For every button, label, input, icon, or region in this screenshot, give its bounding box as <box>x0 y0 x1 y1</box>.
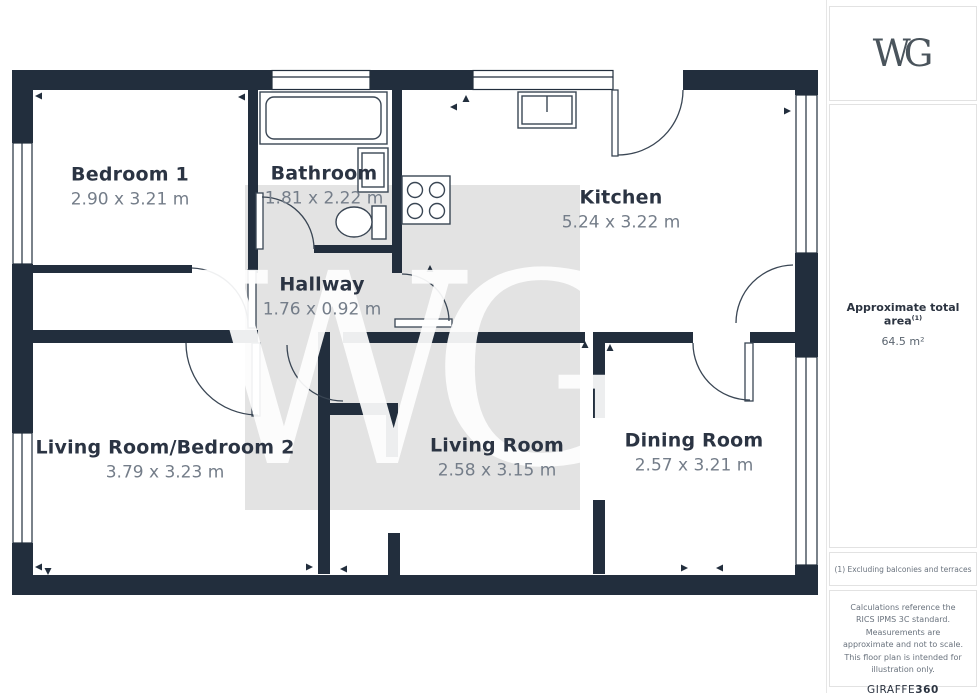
room-label-hallway: Hallway 1.76 x 0.92 m <box>263 272 382 323</box>
room-dimensions: 5.24 x 3.22 m <box>562 211 681 236</box>
total-area-superscript: (1) <box>912 314 922 322</box>
room-dimensions: 2.57 x 3.21 m <box>625 454 764 479</box>
room-label-kitchen: Kitchen 5.24 x 3.22 m <box>562 185 681 236</box>
stove-icon <box>402 176 450 224</box>
sidebar-footnote-box: (1) Excluding balconies and terraces <box>829 552 977 586</box>
room-dimensions: 2.58 x 3.15 m <box>430 459 564 484</box>
room-name: Living Room <box>430 433 564 459</box>
bathtub-icon <box>260 92 387 144</box>
total-area-block: Approximate total area(1) 64.5 m² <box>830 301 976 348</box>
room-label-dining-room: Dining Room 2.57 x 3.21 m <box>625 428 764 479</box>
total-area-label-text: Approximate total area <box>847 301 960 328</box>
brand-suffix: 360 <box>915 684 939 693</box>
room-label-bedroom-1: Bedroom 1 2.90 x 3.21 m <box>71 162 190 213</box>
room-name: Hallway <box>263 272 382 298</box>
sidebar-divider <box>826 0 827 693</box>
floorplan-page: WG Bedroom 1 2.90 x 3.21 m Bathroom 1.81… <box>0 0 980 693</box>
room-name: Living Room/Bedroom 2 <box>35 435 294 461</box>
sidebar-area-box: Approximate total area(1) 64.5 m² <box>829 104 977 548</box>
room-name: Bathroom <box>265 161 384 187</box>
room-name: Dining Room <box>625 428 764 454</box>
room-dimensions: 3.79 x 3.23 m <box>35 461 294 486</box>
room-name: Bedroom 1 <box>71 162 190 188</box>
room-label-bathroom: Bathroom 1.81 x 2.22 m <box>265 161 384 212</box>
brand-name: GIRAFFE <box>867 684 915 693</box>
giraffe360-brand: GIRAFFE360 <box>830 684 976 693</box>
total-area-label: Approximate total area(1) <box>830 301 976 328</box>
kitchen-sink-icon <box>518 92 576 128</box>
room-dimensions: 1.76 x 0.92 m <box>263 298 382 323</box>
total-area-value: 64.5 m² <box>830 335 976 348</box>
disclaimer-text: Calculations reference the RICS IPMS 3C … <box>830 591 976 676</box>
room-label-living-room: Living Room 2.58 x 3.15 m <box>430 433 564 484</box>
room-name: Kitchen <box>562 185 681 211</box>
room-dimensions: 1.81 x 2.22 m <box>265 187 384 212</box>
room-dimensions: 2.90 x 3.21 m <box>71 188 190 213</box>
sidebar-disclaimer-box: Calculations reference the RICS IPMS 3C … <box>829 590 977 687</box>
room-label-living-room-bedroom-2: Living Room/Bedroom 2 3.79 x 3.23 m <box>35 435 294 486</box>
wg-logo: WG <box>873 32 934 75</box>
sidebar-logo-box: WG <box>829 6 977 101</box>
footnote-text: (1) Excluding balconies and terraces <box>835 565 972 574</box>
